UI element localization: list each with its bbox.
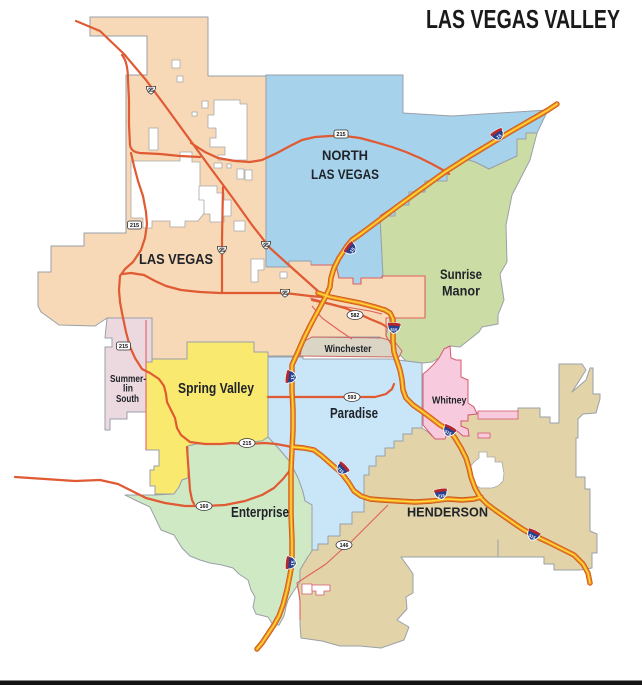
svg-text:515: 515 <box>390 327 398 332</box>
svg-text:593: 593 <box>348 395 357 401</box>
svg-text:Enterprise: Enterprise <box>231 504 289 521</box>
svg-text:582: 582 <box>351 313 360 319</box>
svg-text:NORTH: NORTH <box>322 148 368 163</box>
svg-text:215: 215 <box>336 132 345 138</box>
svg-text:HENDERSON: HENDERSON <box>407 506 488 520</box>
svg-text:95: 95 <box>219 248 225 254</box>
svg-text:Manor: Manor <box>442 284 481 299</box>
svg-text:Spring Valley: Spring Valley <box>178 380 255 397</box>
svg-text:15: 15 <box>290 560 297 566</box>
svg-text:215: 215 <box>437 493 445 499</box>
svg-text:LAS VEGAS: LAS VEGAS <box>311 167 379 182</box>
svg-text:95: 95 <box>148 88 154 94</box>
svg-text:Sunrise: Sunrise <box>440 267 482 282</box>
svg-text:South: South <box>116 393 139 405</box>
svg-text:Whitney: Whitney <box>432 395 467 407</box>
svg-text:215: 215 <box>243 441 252 447</box>
svg-text:LAS VEGAS: LAS VEGAS <box>139 252 213 268</box>
svg-text:215: 215 <box>130 223 139 229</box>
svg-text:Paradise: Paradise <box>330 405 378 422</box>
svg-text:160: 160 <box>200 504 209 510</box>
svg-text:146: 146 <box>340 543 349 549</box>
svg-text:LAS VEGAS VALLEY: LAS VEGAS VALLEY <box>426 4 620 34</box>
svg-text:95: 95 <box>263 243 269 249</box>
svg-text:Winchester: Winchester <box>325 343 372 355</box>
svg-text:95: 95 <box>282 291 288 297</box>
svg-text:215: 215 <box>119 344 128 350</box>
